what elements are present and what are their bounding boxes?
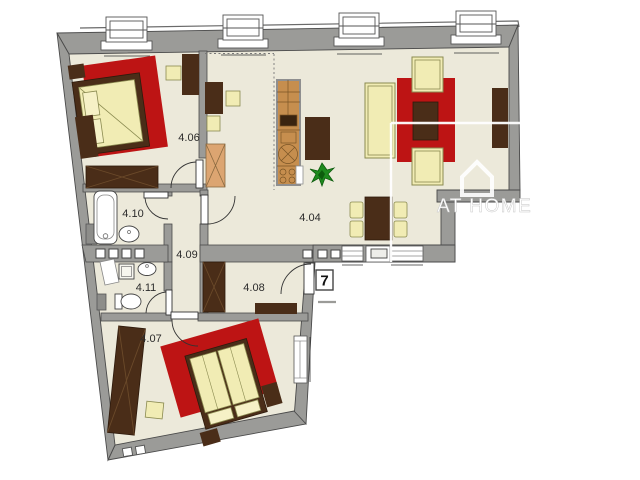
room-label-4-11: 4.11 xyxy=(136,282,157,294)
wall-hall-west-c xyxy=(164,262,172,291)
stool xyxy=(226,91,240,106)
coffee-table xyxy=(413,102,438,140)
cabinet xyxy=(205,82,223,114)
wardrobe xyxy=(203,262,225,312)
side-table xyxy=(166,66,181,80)
window xyxy=(218,15,268,48)
wall-407-north-a xyxy=(101,313,172,321)
wall-408-north xyxy=(200,245,313,262)
tan-cabinet xyxy=(206,144,225,187)
chair xyxy=(394,202,407,218)
dishwasher xyxy=(296,166,303,184)
watermark-text: AT HOME xyxy=(437,196,532,217)
chair xyxy=(350,221,363,237)
unit-number: 7 xyxy=(320,273,328,290)
chair xyxy=(394,221,407,237)
armchair xyxy=(412,57,443,92)
sink xyxy=(119,226,139,242)
sideboard xyxy=(492,88,508,148)
pillow xyxy=(83,91,100,117)
chair xyxy=(350,202,363,218)
armchair xyxy=(412,148,443,185)
wall-east xyxy=(509,25,520,190)
toilet xyxy=(115,294,141,309)
vent xyxy=(135,445,145,454)
wall-407-north-b xyxy=(198,313,308,321)
room-label-4-08: 4.08 xyxy=(243,282,264,294)
wardrobe xyxy=(86,166,158,188)
room-label-4-04: 4.04 xyxy=(299,212,320,224)
stool xyxy=(207,116,220,131)
tall-wardrobe xyxy=(182,54,199,95)
room-label-4-09: 4.09 xyxy=(176,249,197,261)
room-label-4-07: 4.07 xyxy=(140,333,161,345)
kitchen-island xyxy=(305,117,330,160)
unit-number-badge: 7 xyxy=(316,270,333,290)
room-label-4-06: 4.06 xyxy=(178,132,199,144)
desk xyxy=(255,303,297,314)
window xyxy=(451,11,501,44)
nightstand xyxy=(68,64,86,80)
stool xyxy=(145,401,164,419)
window xyxy=(342,246,363,261)
window xyxy=(101,17,152,50)
window xyxy=(391,246,423,261)
room-label-4-10: 4.10 xyxy=(122,208,143,220)
floor-plan: 4.06 xyxy=(0,0,640,480)
floor-plan-page: 4.06 xyxy=(0,0,640,480)
dining-table xyxy=(365,197,392,240)
duct-shaft xyxy=(97,294,106,310)
window xyxy=(334,13,384,46)
vent xyxy=(122,447,132,456)
